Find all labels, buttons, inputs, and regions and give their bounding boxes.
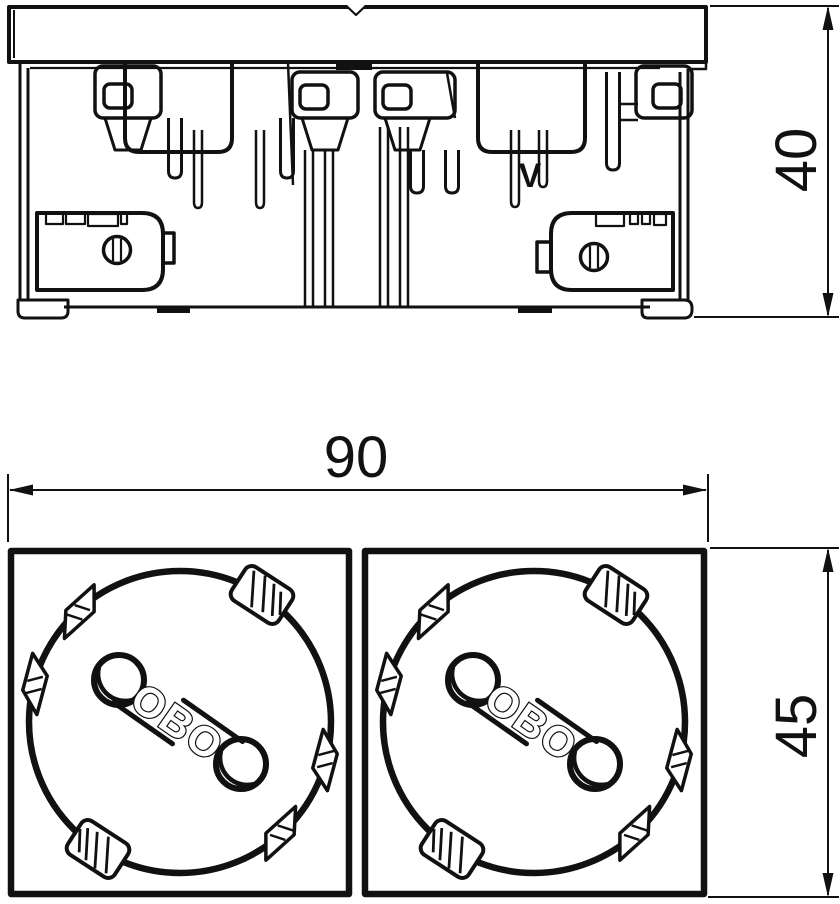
inner-walls — [305, 127, 408, 307]
arrowhead-up — [823, 6, 834, 30]
screw-left — [104, 237, 131, 264]
clip-2 — [292, 72, 358, 150]
dimension-90-label: 90 — [324, 425, 389, 490]
mounting-claw — [18, 653, 52, 714]
dimension-45: 45 — [708, 548, 839, 897]
arrowhead-down — [823, 293, 834, 317]
obo-logo: OBO — [466, 666, 598, 778]
mounting-claw — [662, 729, 696, 790]
socket-right: OBO — [365, 551, 704, 894]
dimension-40-label: 40 — [764, 128, 829, 193]
arrowhead-left — [9, 485, 33, 496]
v-marking-label: V — [519, 157, 542, 195]
front-view: 90 — [8, 425, 839, 897]
mounting-claw — [372, 653, 406, 714]
cover-plate — [9, 4, 706, 70]
arrowhead-right — [683, 485, 707, 496]
dimension-40: 40 — [694, 6, 839, 317]
left-foot — [18, 300, 68, 318]
recess-right — [478, 63, 585, 152]
right-foot — [642, 300, 692, 318]
screw-lug-left — [37, 213, 174, 290]
technical-drawing: V 40 90 — [0, 0, 840, 904]
arrowhead-up — [823, 548, 834, 572]
mounting-claw — [308, 729, 342, 790]
obo-logo: OBO — [112, 666, 244, 778]
clip-1 — [95, 66, 161, 150]
pin-hole — [216, 739, 266, 789]
side-view: V 40 — [9, 4, 839, 318]
pin-hole — [570, 739, 620, 789]
arrowhead-down — [823, 873, 834, 897]
recess-left — [125, 63, 232, 152]
dimension-90: 90 — [8, 425, 708, 542]
dimension-45-label: 45 — [764, 694, 829, 759]
module-body — [18, 62, 692, 318]
socket-left: OBO — [11, 551, 349, 894]
screw-right — [581, 244, 608, 271]
screw-lug-right — [537, 213, 673, 290]
